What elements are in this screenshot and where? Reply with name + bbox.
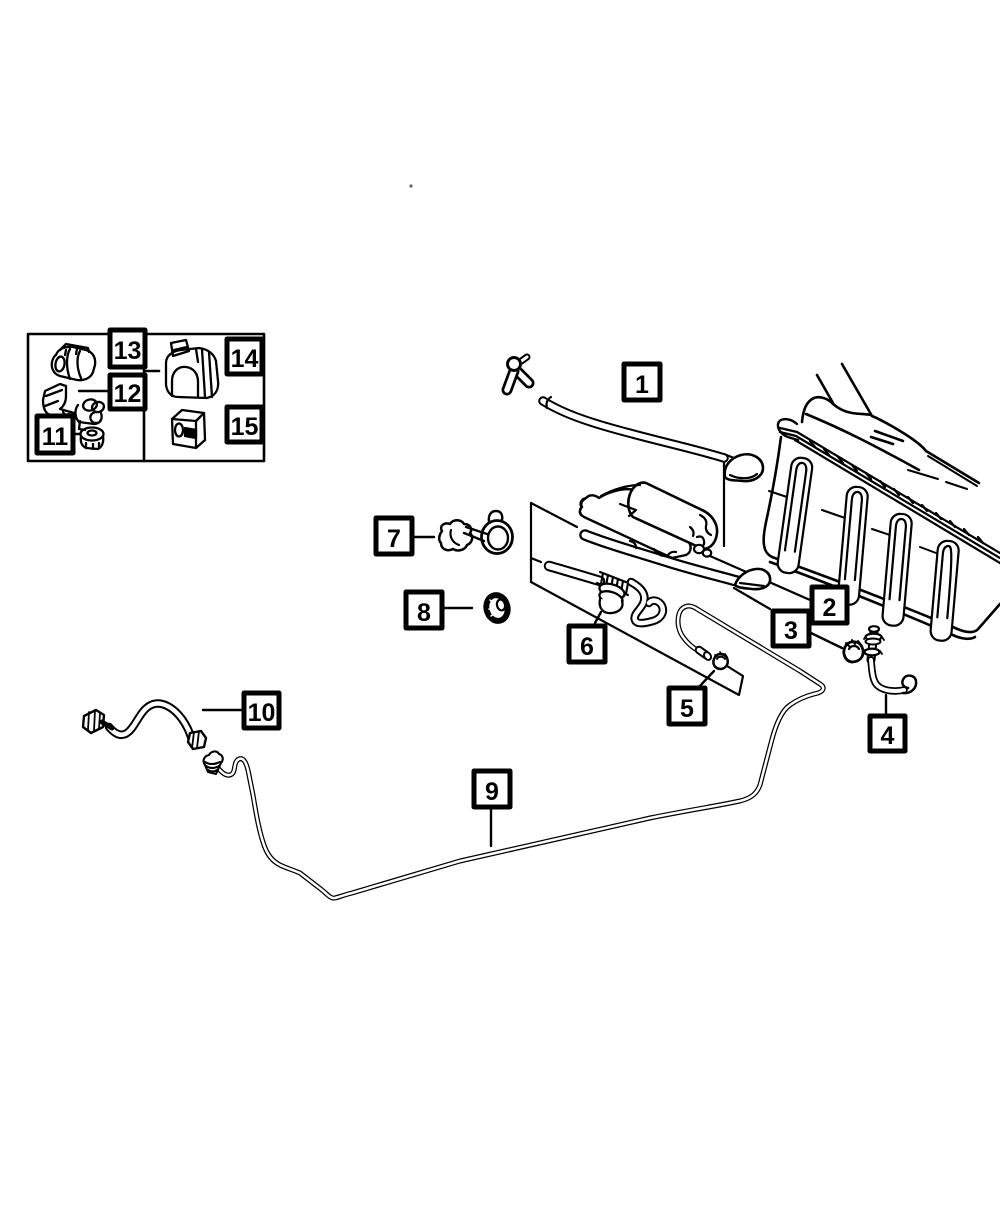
svg-text:7: 7 (387, 525, 401, 553)
svg-text:8: 8 (417, 599, 431, 627)
svg-text:4: 4 (881, 722, 895, 750)
svg-text:15: 15 (231, 413, 259, 441)
svg-text:6: 6 (580, 633, 594, 661)
svg-text:3: 3 (784, 617, 798, 645)
svg-text:11: 11 (42, 423, 69, 451)
svg-text:5: 5 (680, 695, 694, 723)
svg-text:2: 2 (823, 594, 837, 622)
svg-text:1: 1 (635, 371, 649, 399)
svg-text:14: 14 (231, 345, 259, 373)
svg-text:12: 12 (114, 380, 142, 408)
svg-text:10: 10 (248, 699, 276, 727)
svg-text:9: 9 (485, 778, 499, 806)
svg-text:13: 13 (114, 337, 142, 365)
